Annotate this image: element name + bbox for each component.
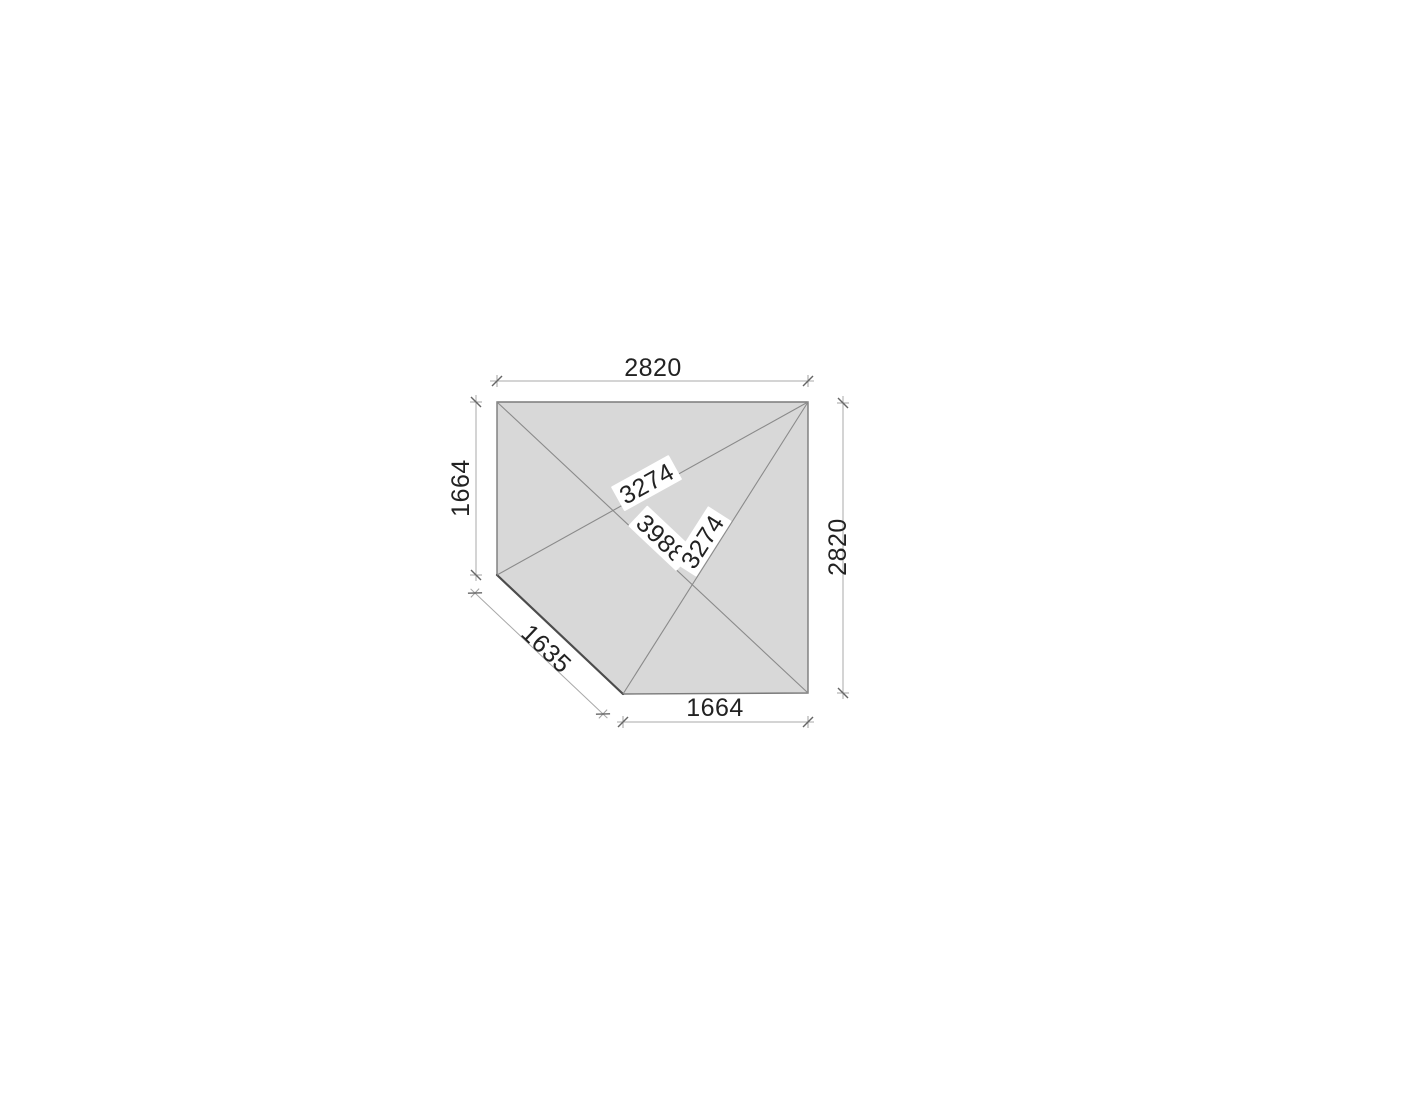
- dimension-drawing: 2820 1664 2820 1664: [0, 0, 1422, 1100]
- dimension-label: 1664: [686, 694, 744, 722]
- top-dimension: 2820: [490, 354, 814, 387]
- page-canvas: 2820 1664 2820 1664: [0, 0, 1422, 1100]
- bottom-dimension: 1664: [617, 694, 814, 728]
- dimension-label: 1664: [447, 459, 475, 517]
- dimension-label: 2820: [824, 518, 852, 576]
- dimension-label: 2820: [624, 354, 682, 382]
- left-dimension: 1664: [447, 395, 482, 581]
- right-dimension: 2820: [824, 396, 852, 699]
